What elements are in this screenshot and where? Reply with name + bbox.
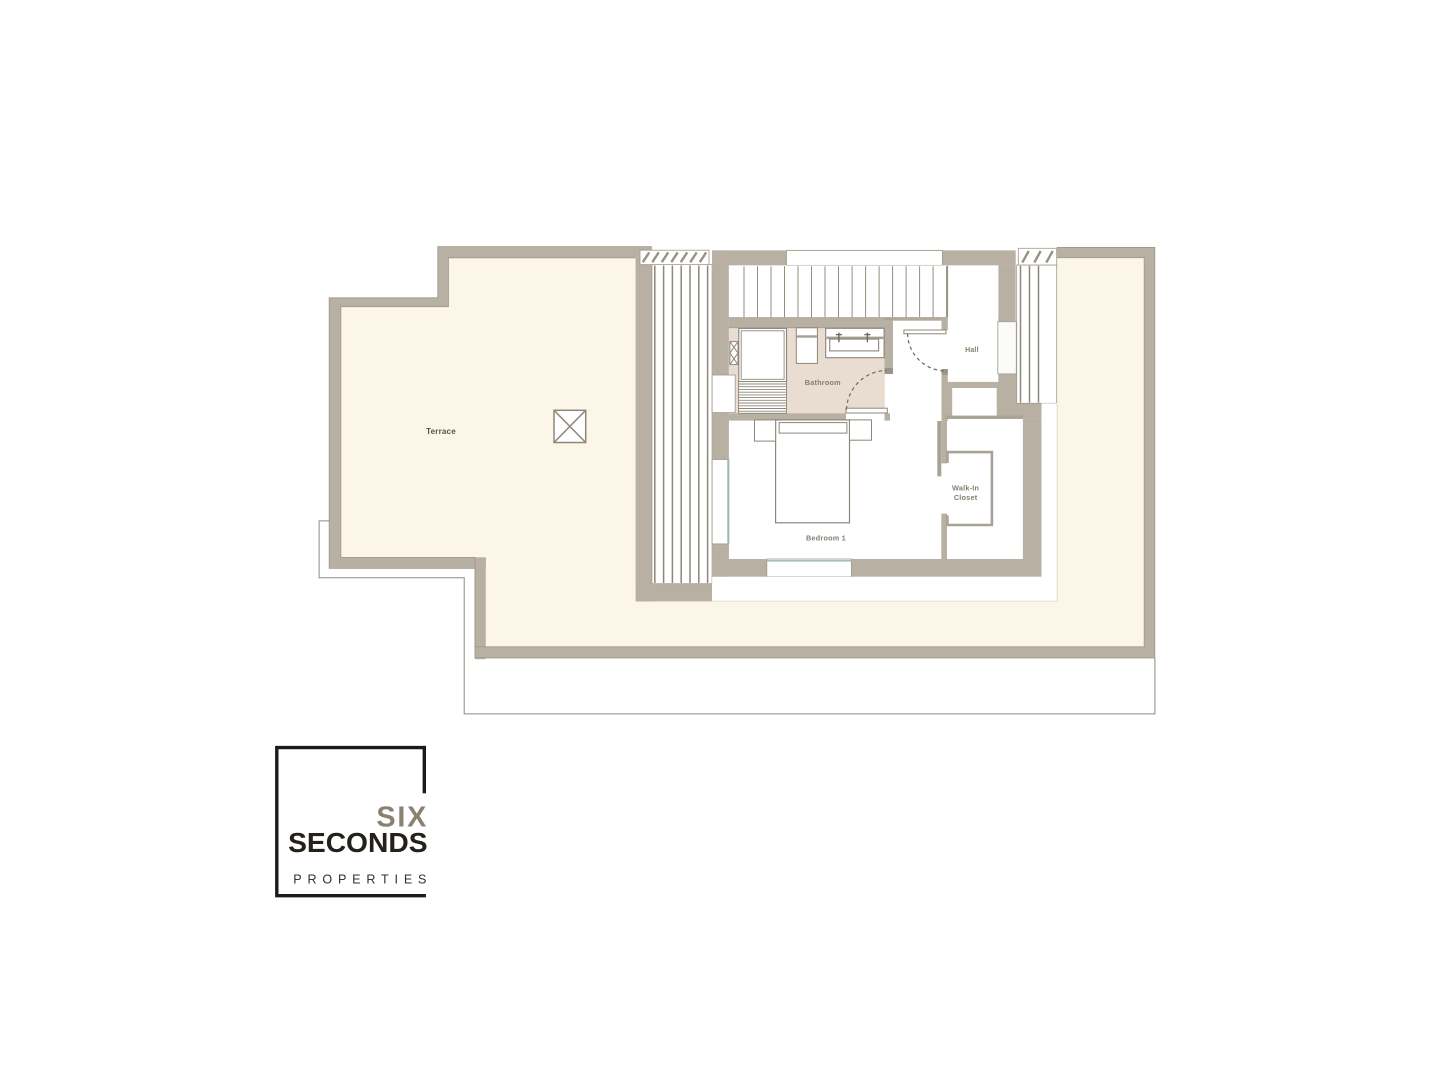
svg-text:Terrace: Terrace bbox=[426, 427, 456, 436]
svg-text:PROPERTIES: PROPERTIES bbox=[293, 872, 432, 886]
svg-text:Bathroom: Bathroom bbox=[805, 378, 841, 387]
svg-text:Closet: Closet bbox=[954, 493, 978, 502]
svg-text:SECONDS: SECONDS bbox=[288, 826, 427, 858]
svg-text:Hall: Hall bbox=[965, 347, 979, 354]
svg-text:Bedroom 1: Bedroom 1 bbox=[806, 533, 846, 542]
svg-text:Walk-In: Walk-In bbox=[952, 483, 979, 492]
